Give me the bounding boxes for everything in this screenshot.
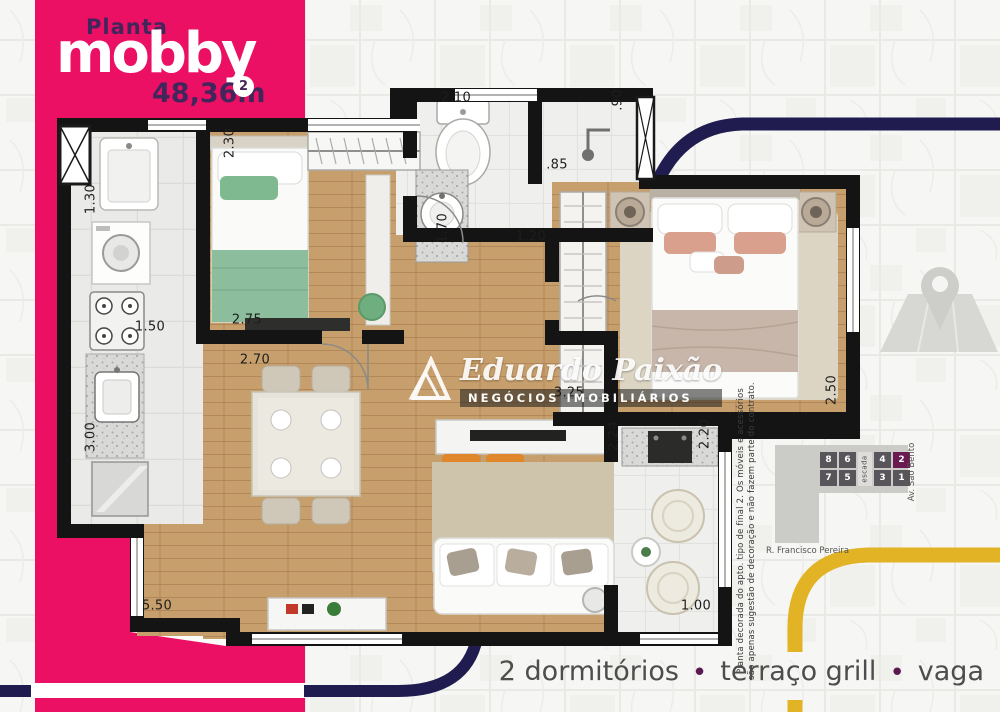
duct-shaft (637, 97, 654, 179)
nightstand-right (796, 192, 836, 232)
keyplan-unit-5: 5 (839, 470, 856, 486)
dim-label: 1.50 (135, 320, 165, 335)
watermark-name: Eduardo Paixão (460, 356, 722, 386)
floorplan-marketing-page: Planta mobby 48,36m 2 2.30 2.10 .90 .85 … (0, 0, 1000, 712)
brand-logo-text: mobby (56, 26, 255, 82)
dim-label: 2.75 (232, 313, 262, 328)
elevator-shaft (60, 126, 90, 184)
footer-tagline: 2 dormitórios • terraço grill • vaga (499, 656, 984, 687)
street-label-francisco-pereira: R. Francisco Pereira (766, 546, 849, 556)
dim-label: 2.20 (698, 419, 713, 449)
footer-item-vaga: vaga (918, 656, 984, 687)
dim-label: 2.70 (240, 353, 270, 368)
washing-machine (92, 222, 150, 284)
keyplan-unit-grid: 8 6 escada 4 2 7 5 3 1 (820, 452, 910, 486)
pouf (359, 294, 385, 320)
keyplan-unit-6: 6 (839, 452, 856, 468)
disclaimer-line2: são apenas sugestão de decoração e não f… (747, 382, 757, 680)
disclaimer-line1: Planta decorada do apto. tipo de final 2… (736, 388, 746, 674)
dim-label: 1.30 (84, 184, 99, 214)
dim-label: 1.20 (516, 230, 546, 245)
dim-label: 2.30 (223, 128, 238, 158)
single-bed (210, 136, 310, 322)
keyplan-stairs-label: escada (861, 455, 869, 482)
sideboard (268, 598, 386, 630)
footer-item-dormitorios: 2 dormitórios (499, 656, 679, 687)
nightstand-left (610, 192, 650, 232)
footer-item-terraco: terraço grill (720, 656, 876, 687)
laundry-sink (100, 138, 158, 210)
dim-label: 1.70 (436, 213, 451, 243)
brand-area-superscript: 2 (233, 76, 254, 97)
dim-label: .90 (611, 89, 626, 111)
floor-lamp (583, 588, 607, 612)
footer-bullet-icon: • (692, 658, 707, 686)
dim-label: 2.24 (607, 421, 622, 451)
watermark: Eduardo Paixão NEGÓCIOS IMOBILIÁRIOS (408, 356, 722, 407)
keyplan-unit-4: 4 (874, 452, 891, 468)
terrace-table (632, 538, 660, 566)
dim-label: .85 (546, 158, 568, 173)
watermark-logo-icon (408, 356, 454, 402)
dim-label: 2.10 (441, 91, 471, 106)
dim-label: 2.50 (825, 375, 840, 405)
footer-bullet-icon: • (889, 658, 904, 686)
refrigerator (92, 462, 148, 516)
dim-label: 3.00 (84, 422, 99, 452)
keyplan-stairs: escada (858, 452, 872, 486)
dim-label: 5.50 (142, 599, 172, 614)
keyplan-unit-3: 3 (874, 470, 891, 486)
dim-label: 1.00 (681, 599, 711, 614)
keyplan-unit-7: 7 (820, 470, 837, 486)
stripe-knockout (30, 683, 306, 698)
street-label-av-sao-bento: Av. São Bento (907, 443, 917, 502)
watermark-subtitle: NEGÓCIOS IMOBILIÁRIOS (460, 389, 722, 407)
keyplan-unit-8: 8 (820, 452, 837, 468)
